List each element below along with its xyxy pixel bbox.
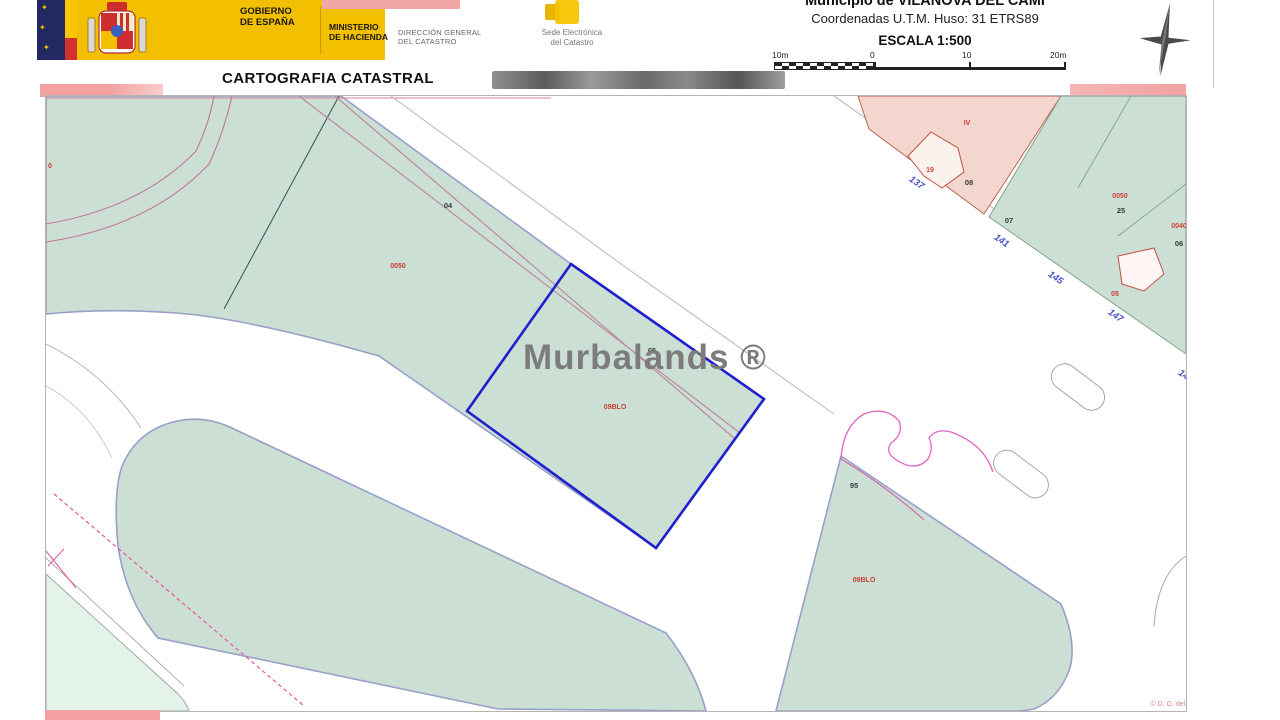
government-logo-band: GOBIERNO DE ESPAÑA MINISTERIO DE HACIEND… [77,0,385,60]
selected-parcel-code-label: 09BLO [604,404,627,411]
street-number: 14 [1176,367,1186,382]
scale-bar: 10m 0 10 20m [772,50,1072,74]
parcel-code-label: 0050 [390,263,406,270]
street-number: 137 [907,174,927,193]
utm-coordinates-label: Coordenadas U.T.M. Huso: 31 ETRS89 [760,11,1090,26]
cadastral-map-svg: 00050040509BLO9509BLOIV19080713714114514… [46,96,1186,711]
parcel-number-label: 04 [444,201,453,210]
flag-star-icon: ✦ [43,44,50,52]
parcel-code-label: 0040 [1171,223,1186,230]
scale-bar-graphic [774,62,1066,70]
parcel-number-label: 95 [850,481,858,490]
spain-flag-logo: ✦ ✦ ✦ [37,0,77,60]
parcel-number-label: 06 [1175,239,1183,248]
sede-electronica-icon [545,0,591,26]
page-title: CARTOGRAFIA CATASTRAL [222,70,522,87]
flag-blue-field: ✦ ✦ ✦ [37,0,65,60]
flag-star-icon: ✦ [39,24,46,32]
parcel-code-label: 0050 [1112,193,1128,200]
scale-tick-label: 0 [870,50,875,60]
parcel-code-label: 09BLO [853,577,876,584]
gobierno-label: GOBIERNO DE ESPAÑA [240,6,320,28]
road-bay-capsule [1046,359,1110,416]
page-frame-line [1213,0,1214,88]
spain-coat-of-arms-icon [85,2,149,58]
scale-tick-label: 20m [1050,50,1067,60]
street-number: 145 [1046,269,1066,288]
building-label: 05 [1111,291,1119,298]
street-number: 141 [992,232,1011,250]
road-curve-line [46,386,112,458]
parcel-number-label: 25 [1117,206,1125,215]
scale-bar-checker [774,62,874,70]
direccion-general-label: DIRECCIÓN GENERAL DEL CATASTRO [398,28,508,46]
building-label: 19 [926,167,934,174]
sede-electronica-label: Sede Electrónica del Catastro [524,28,620,48]
scale-tick-label: 10 [962,50,971,60]
flag-red-stripe [65,38,77,60]
map-copyright: © D. G. del Catastro [1150,700,1186,708]
flag-yellow-stripe [65,0,77,38]
road-bay-capsule [988,445,1053,503]
parcel-label-left-edge: 0 [48,163,52,170]
parcel-number-label: 07 [1005,216,1013,225]
redaction-bar-gray [492,71,785,89]
cadastral-map-page: ✦ ✦ ✦ GOBIERNO DE ESPAÑA MINISTERIO [0,0,1280,720]
municipio-title: Municipio de VILANOVA DEL CAMÍ [760,0,1090,9]
magenta-hook-outline [841,411,993,472]
sede-icon-square-front [555,0,579,24]
scale-bar-line [874,62,1066,70]
scale-tick-label: 10m [772,50,789,60]
logo-divider [320,6,321,54]
scale-label: ESCALA 1:500 [760,33,1090,48]
parcel-code-label: IV [964,120,971,127]
watermark: Murbalands ® [495,338,795,378]
redaction-bar-small [322,0,460,9]
compass-north-icon [1128,0,1200,82]
road-curve-line [46,344,141,428]
parcel-number-label: 08 [965,178,973,187]
cadastral-map-canvas[interactable]: 00050040509BLO9509BLOIV19080713714114514… [45,95,1187,712]
redaction-bar-pink-bottom [45,710,160,720]
flag-star-icon: ✦ [41,4,48,12]
road-bulb-curve [1154,551,1186,626]
